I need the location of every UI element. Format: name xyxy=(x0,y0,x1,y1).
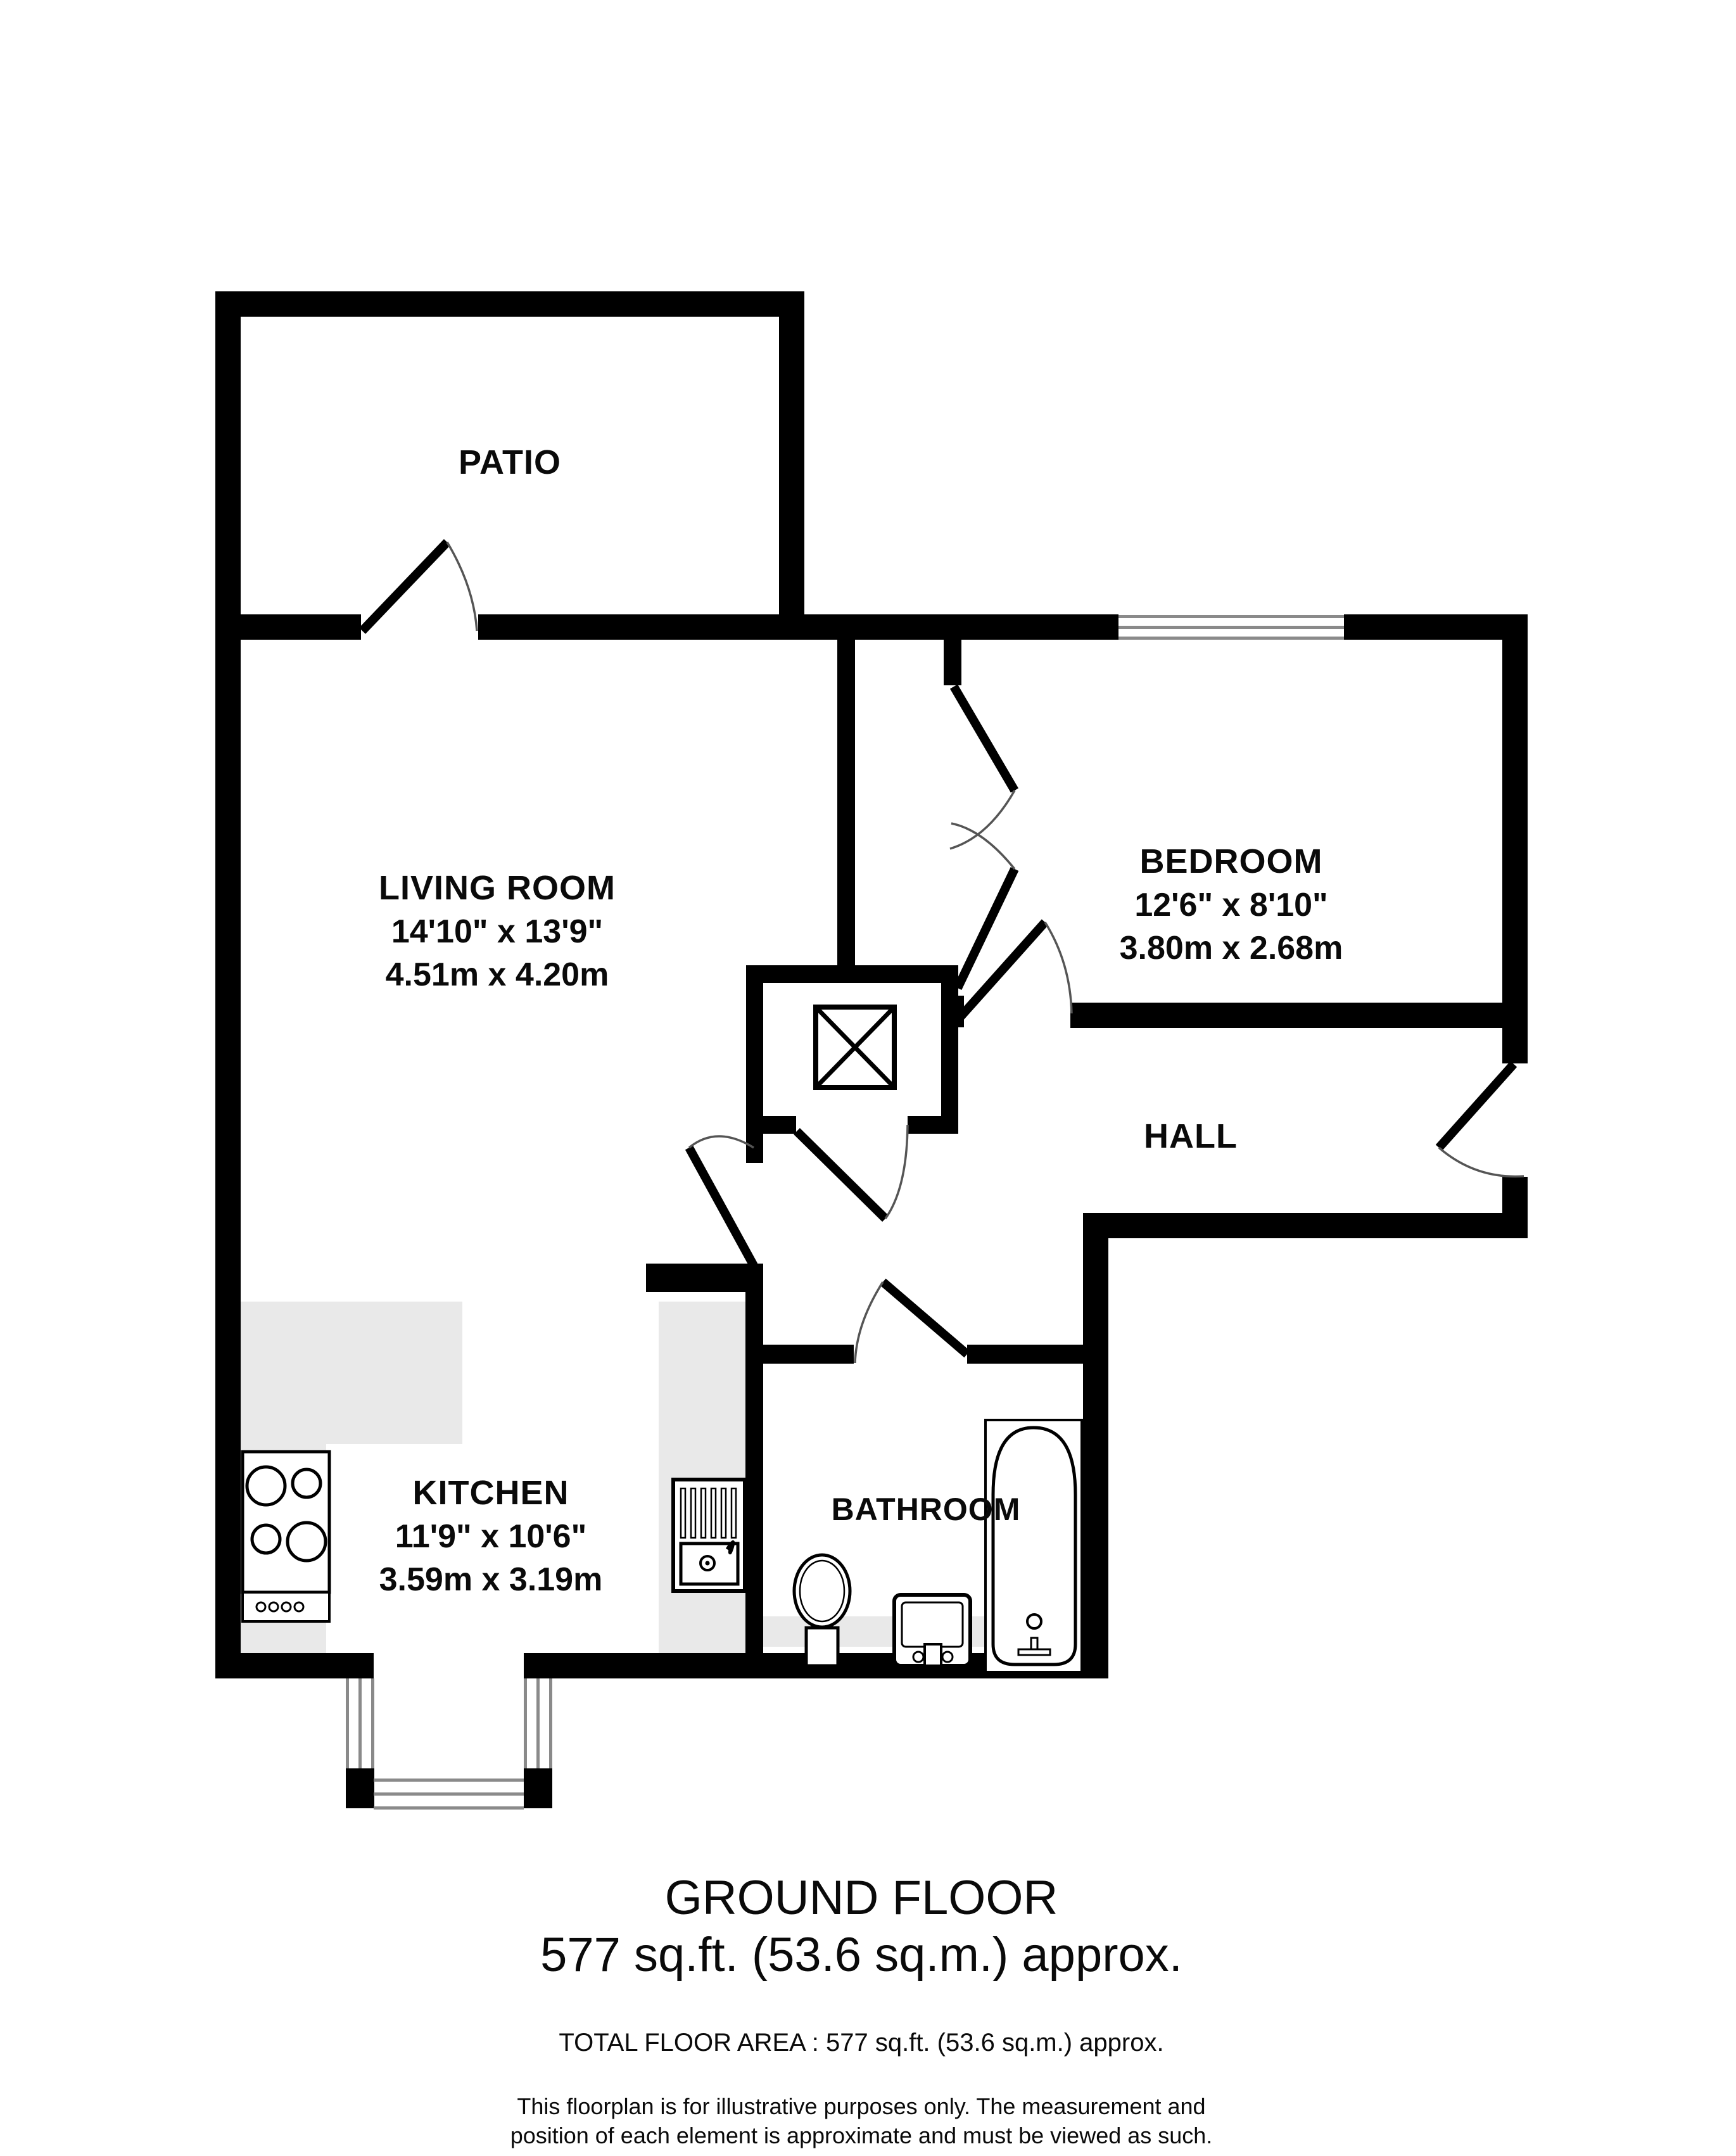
kitchen-sink-icon xyxy=(673,1480,745,1591)
patio-label: PATIO xyxy=(459,443,561,481)
kitchen-label: KITCHEN xyxy=(413,1474,569,1512)
living-room-size-imperial: 14'10" x 13'9" xyxy=(391,913,603,950)
living-to-hall-door xyxy=(689,1136,754,1265)
bay-window xyxy=(346,1678,552,1810)
bedroom-size-metric: 3.80m x 2.68m xyxy=(1120,930,1343,967)
hand-basin-icon xyxy=(894,1595,970,1666)
kitchen-size-imperial: 11'9" x 10'6" xyxy=(395,1518,587,1555)
bathroom-label: BATHROOM xyxy=(832,1492,1021,1527)
toilet-icon xyxy=(794,1555,850,1666)
disclaimer-line-1: This floorplan is for illustrative purpo… xyxy=(517,2093,1205,2119)
hall-label: HALL xyxy=(1144,1117,1238,1155)
bathtub-icon xyxy=(985,1420,1082,1672)
bathroom-door xyxy=(855,1282,967,1363)
floorplan-canvas: PATIO LIVING ROOM 14'10" x 13'9" 4.51m x… xyxy=(0,0,1736,2156)
bedroom-size-imperial: 12'6" x 8'10" xyxy=(1134,887,1327,923)
gas-hob-icon xyxy=(243,1452,329,1621)
bedroom-label: BEDROOM xyxy=(1140,842,1323,880)
patio-door xyxy=(362,542,477,631)
total-floor-area: TOTAL FLOOR AREA : 577 sq.ft. (53.6 sq.m… xyxy=(559,2029,1163,2057)
bedroom-door xyxy=(960,922,1072,1017)
living-room-size-metric: 4.51m x 4.20m xyxy=(386,956,609,993)
crossed-box-shaft-icon xyxy=(816,1007,894,1088)
disclaimer-line-2: position of each element is approximate … xyxy=(510,2122,1213,2148)
wardrobe-double-doors xyxy=(950,687,1015,988)
floor-title: GROUND FLOOR xyxy=(665,1871,1058,1925)
bedroom-window xyxy=(1118,614,1344,640)
cupboard-door xyxy=(797,1125,908,1219)
floor-area: 577 sq.ft. (53.6 sq.m.) approx. xyxy=(540,1928,1182,1982)
kitchen-size-metric: 3.59m x 3.19m xyxy=(379,1561,603,1598)
floorplan-page: PATIO LIVING ROOM 14'10" x 13'9" 4.51m x… xyxy=(0,0,1736,2156)
living-room-label: LIVING ROOM xyxy=(379,869,616,907)
front-entrance-door xyxy=(1439,1064,1524,1176)
